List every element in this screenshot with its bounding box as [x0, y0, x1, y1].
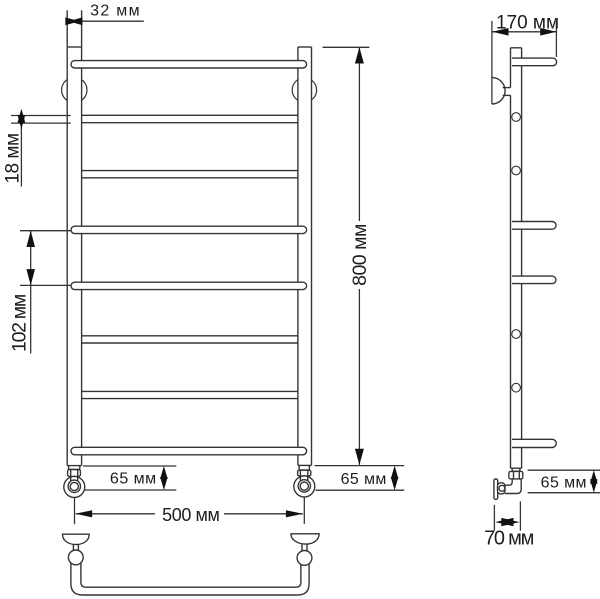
- svg-text:102 мм: 102 мм: [9, 294, 31, 352]
- svg-text:500 мм: 500 мм: [162, 505, 219, 525]
- svg-text:32 мм: 32 мм: [90, 2, 141, 19]
- svg-text:18 мм: 18 мм: [3, 133, 24, 183]
- svg-text:170 мм: 170 мм: [496, 12, 559, 33]
- svg-text:70 мм: 70 мм: [484, 528, 534, 550]
- svg-text:65 мм: 65 мм: [110, 471, 157, 488]
- svg-text:65 мм: 65 мм: [541, 474, 587, 491]
- svg-text:800 мм: 800 мм: [349, 224, 371, 286]
- svg-text:65 мм: 65 мм: [341, 471, 387, 488]
